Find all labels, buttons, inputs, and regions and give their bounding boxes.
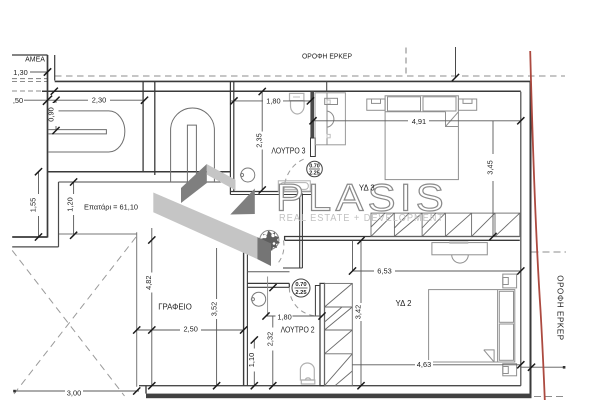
svg-text:4,63: 4,63 (417, 360, 431, 369)
svg-text:3,45: 3,45 (485, 160, 494, 174)
svg-text:2,30: 2,30 (92, 96, 106, 105)
svg-text:3,52: 3,52 (209, 302, 218, 316)
svg-text:ΟΡΟΦΗ ΕΡΚΕΡ: ΟΡΟΦΗ ΕΡΚΕΡ (556, 275, 565, 340)
svg-text:2,32: 2,32 (266, 332, 275, 346)
svg-text:2.25: 2.25 (309, 171, 320, 177)
svg-text:REAL ESTATE + DEVELOPMENT: REAL ESTATE + DEVELOPMENT (279, 213, 444, 224)
svg-text:ΟΡΟΦΗ ΕΡΚΕΡ: ΟΡΟΦΗ ΕΡΚΕΡ (302, 52, 352, 61)
svg-text:0,90: 0,90 (47, 107, 56, 121)
svg-text:2,50: 2,50 (184, 324, 198, 333)
svg-text:6,53: 6,53 (377, 266, 391, 275)
svg-text:1,55: 1,55 (29, 198, 38, 212)
svg-text:2.25: 2.25 (295, 290, 307, 296)
svg-text:4,91: 4,91 (412, 117, 426, 126)
svg-text:ΥΔ 3: ΥΔ 3 (359, 183, 375, 192)
svg-text:1,80: 1,80 (277, 312, 291, 321)
svg-text:ΑΜΕΑ: ΑΜΕΑ (25, 57, 45, 64)
svg-text:2,35: 2,35 (255, 133, 264, 147)
svg-text:ΥΔ 2: ΥΔ 2 (396, 299, 412, 308)
svg-text:ΓΡΑΦΕΙΟ: ΓΡΑΦΕΙΟ (158, 302, 192, 311)
svg-text:4,82: 4,82 (144, 276, 153, 290)
svg-text:3,42: 3,42 (353, 305, 362, 319)
svg-text:3,00: 3,00 (67, 389, 81, 398)
svg-text:Επατάρι = 61,10: Επατάρι = 61,10 (84, 203, 138, 212)
svg-text:0.70: 0.70 (295, 282, 306, 288)
svg-text:1,20: 1,20 (65, 197, 74, 211)
svg-text:,50: ,50 (13, 96, 23, 105)
svg-text:1,80: 1,80 (266, 96, 280, 105)
svg-text:1,30: 1,30 (13, 68, 27, 77)
svg-text:1,10: 1,10 (247, 353, 256, 367)
svg-text:ΛΟΥΤΡΟ 2: ΛΟΥΤΡΟ 2 (281, 325, 315, 334)
svg-text:ΛΟΥΤΡΟ 3: ΛΟΥΤΡΟ 3 (271, 147, 305, 156)
svg-text:0.70: 0.70 (309, 163, 320, 169)
